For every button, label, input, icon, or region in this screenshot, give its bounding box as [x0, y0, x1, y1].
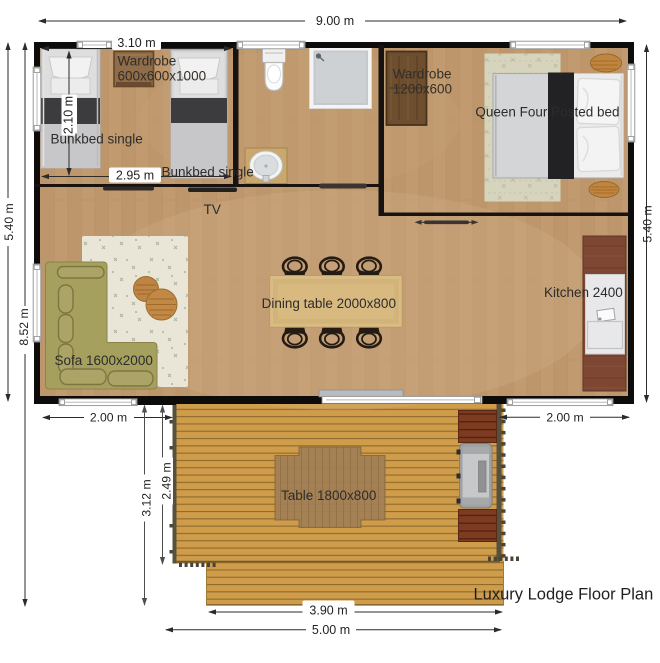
svg-text:Queen Four Posted bed: Queen Four Posted bed — [475, 105, 619, 120]
svg-text:8.52 m: 8.52 m — [17, 308, 31, 345]
svg-text:Wardrobe: Wardrobe — [118, 54, 177, 69]
svg-text:600x600x1000: 600x600x1000 — [118, 69, 207, 84]
svg-text:TV: TV — [204, 202, 221, 217]
svg-text:3.12 m: 3.12 m — [140, 479, 154, 516]
svg-text:3.90 m: 3.90 m — [309, 604, 347, 618]
svg-text:Luxury Lodge Floor Plan: Luxury Lodge Floor Plan — [474, 586, 654, 604]
svg-text:1200x600: 1200x600 — [393, 82, 452, 97]
svg-text:Wardrobe: Wardrobe — [393, 67, 452, 82]
svg-text:2.00 m: 2.00 m — [90, 411, 127, 425]
svg-text:5.00 m: 5.00 m — [312, 623, 350, 637]
svg-text:Kitchen 2400: Kitchen 2400 — [544, 285, 623, 300]
svg-text:5.40 m: 5.40 m — [2, 203, 16, 240]
svg-text:3.10 m: 3.10 m — [117, 36, 155, 50]
svg-text:2.49 m: 2.49 m — [160, 462, 174, 499]
svg-text:2.95 m: 2.95 m — [116, 168, 154, 182]
svg-text:Bunkbed single: Bunkbed single — [51, 132, 143, 147]
svg-text:Dining table 2000x800: Dining table 2000x800 — [262, 296, 396, 311]
svg-text:9.00 m: 9.00 m — [316, 14, 354, 28]
svg-text:5.40 m: 5.40 m — [641, 205, 655, 242]
svg-text:Sofa 1600x2000: Sofa 1600x2000 — [55, 353, 153, 368]
svg-text:Bunkbed single: Bunkbed single — [162, 165, 254, 180]
svg-text:2.00 m: 2.00 m — [546, 411, 583, 425]
svg-text:2.10 m: 2.10 m — [62, 96, 76, 134]
svg-text:Table 1800x800: Table 1800x800 — [281, 488, 376, 503]
